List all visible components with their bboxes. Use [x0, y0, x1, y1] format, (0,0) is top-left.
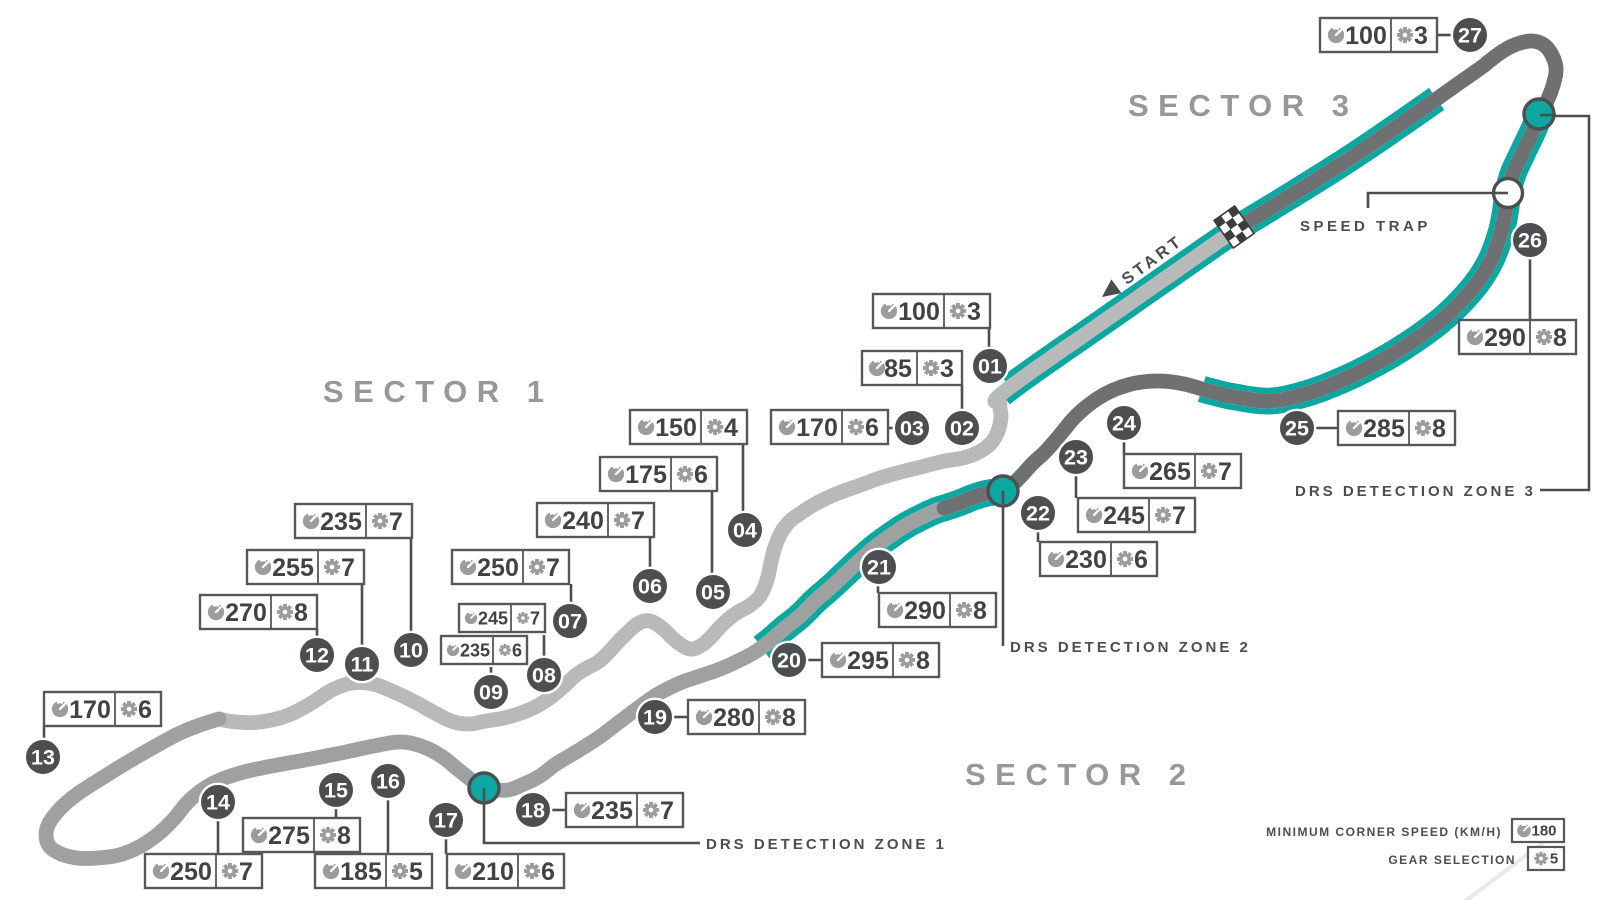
svg-text:14: 14 — [206, 791, 230, 815]
svg-text:290: 290 — [1484, 324, 1526, 352]
svg-text:MINIMUM CORNER SPEED (KM/H): MINIMUM CORNER SPEED (KM/H) — [1266, 825, 1502, 839]
svg-text:11: 11 — [351, 653, 374, 677]
svg-text:6: 6 — [1134, 546, 1148, 574]
svg-text:235: 235 — [591, 797, 633, 825]
svg-text:5: 5 — [409, 858, 423, 886]
svg-text:235: 235 — [320, 508, 362, 536]
svg-text:8: 8 — [294, 599, 308, 627]
svg-text:17: 17 — [434, 809, 458, 833]
svg-text:100: 100 — [898, 298, 940, 326]
svg-text:GEAR SELECTION: GEAR SELECTION — [1388, 853, 1516, 867]
svg-text:27: 27 — [1458, 24, 1482, 48]
svg-text:295: 295 — [847, 647, 889, 675]
svg-text:09: 09 — [479, 681, 503, 705]
svg-text:DRS DETECTION ZONE 3: DRS DETECTION ZONE 3 — [1295, 483, 1536, 500]
svg-text:22: 22 — [1026, 502, 1050, 526]
svg-text:SECTOR 3: SECTOR 3 — [1128, 88, 1358, 123]
svg-text:255: 255 — [272, 554, 314, 582]
svg-text:290: 290 — [904, 597, 946, 625]
svg-text:13: 13 — [31, 746, 55, 770]
svg-text:100: 100 — [1345, 22, 1387, 50]
svg-text:245: 245 — [1103, 502, 1145, 530]
svg-text:3: 3 — [1414, 22, 1428, 50]
svg-text:26: 26 — [1518, 229, 1542, 253]
svg-text:12: 12 — [305, 644, 329, 668]
svg-text:250: 250 — [170, 858, 212, 886]
svg-text:6: 6 — [865, 414, 879, 442]
svg-text:3: 3 — [940, 355, 954, 383]
svg-text:150: 150 — [655, 414, 697, 442]
svg-text:240: 240 — [562, 507, 604, 535]
svg-text:235: 235 — [460, 640, 490, 660]
svg-text:6: 6 — [541, 858, 555, 886]
svg-text:170: 170 — [796, 414, 838, 442]
svg-text:04: 04 — [733, 519, 757, 543]
svg-text:07: 07 — [558, 610, 582, 634]
svg-text:7: 7 — [389, 508, 403, 536]
svg-text:03: 03 — [900, 417, 924, 441]
svg-text:02: 02 — [950, 417, 974, 441]
svg-text:06: 06 — [638, 575, 662, 599]
svg-text:21: 21 — [867, 556, 891, 580]
svg-text:275: 275 — [268, 822, 310, 850]
svg-text:15: 15 — [324, 779, 348, 803]
svg-text:8: 8 — [973, 597, 987, 625]
svg-text:SECTOR 1: SECTOR 1 — [323, 374, 553, 409]
svg-text:175: 175 — [625, 461, 667, 489]
svg-text:7: 7 — [1172, 502, 1186, 530]
svg-text:210: 210 — [472, 858, 514, 886]
svg-text:7: 7 — [239, 858, 253, 886]
svg-text:19: 19 — [643, 706, 667, 730]
svg-text:7: 7 — [660, 797, 674, 825]
svg-text:8: 8 — [1432, 415, 1446, 443]
svg-text:185: 185 — [340, 858, 382, 886]
svg-text:5: 5 — [1550, 851, 1558, 868]
svg-text:8: 8 — [337, 822, 351, 850]
svg-text:245: 245 — [478, 608, 508, 628]
svg-text:6: 6 — [694, 461, 708, 489]
svg-text:23: 23 — [1064, 446, 1088, 470]
svg-text:7: 7 — [546, 554, 560, 582]
svg-text:01: 01 — [978, 355, 1002, 379]
svg-text:20: 20 — [777, 649, 801, 673]
svg-text:8: 8 — [782, 704, 796, 732]
svg-text:SPEED TRAP: SPEED TRAP — [1300, 218, 1431, 235]
svg-text:7: 7 — [341, 554, 355, 582]
svg-text:24: 24 — [1112, 412, 1136, 436]
svg-text:3: 3 — [967, 298, 981, 326]
svg-text:18: 18 — [521, 799, 545, 823]
svg-text:265: 265 — [1149, 458, 1191, 486]
svg-text:6: 6 — [512, 640, 522, 660]
svg-text:250: 250 — [477, 554, 519, 582]
svg-text:4: 4 — [724, 414, 738, 442]
svg-text:10: 10 — [399, 639, 423, 663]
svg-text:DRS DETECTION ZONE 2: DRS DETECTION ZONE 2 — [1010, 639, 1251, 656]
svg-text:25: 25 — [1285, 417, 1309, 441]
svg-text:8: 8 — [1553, 324, 1567, 352]
svg-text:8: 8 — [916, 647, 930, 675]
svg-text:05: 05 — [701, 581, 725, 605]
svg-text:16: 16 — [376, 770, 400, 794]
svg-text:7: 7 — [1218, 458, 1232, 486]
svg-text:270: 270 — [225, 599, 267, 627]
svg-text:85: 85 — [884, 355, 912, 383]
svg-text:6: 6 — [138, 696, 152, 724]
svg-text:170: 170 — [69, 696, 111, 724]
svg-text:SECTOR 2: SECTOR 2 — [965, 757, 1195, 792]
svg-text:230: 230 — [1065, 546, 1107, 574]
svg-text:180: 180 — [1531, 823, 1556, 840]
svg-text:08: 08 — [532, 664, 556, 688]
svg-text:285: 285 — [1363, 415, 1405, 443]
svg-text:7: 7 — [631, 507, 645, 535]
svg-text:7: 7 — [530, 608, 540, 628]
svg-text:DRS DETECTION ZONE 1: DRS DETECTION ZONE 1 — [706, 836, 947, 853]
svg-text:280: 280 — [713, 704, 755, 732]
